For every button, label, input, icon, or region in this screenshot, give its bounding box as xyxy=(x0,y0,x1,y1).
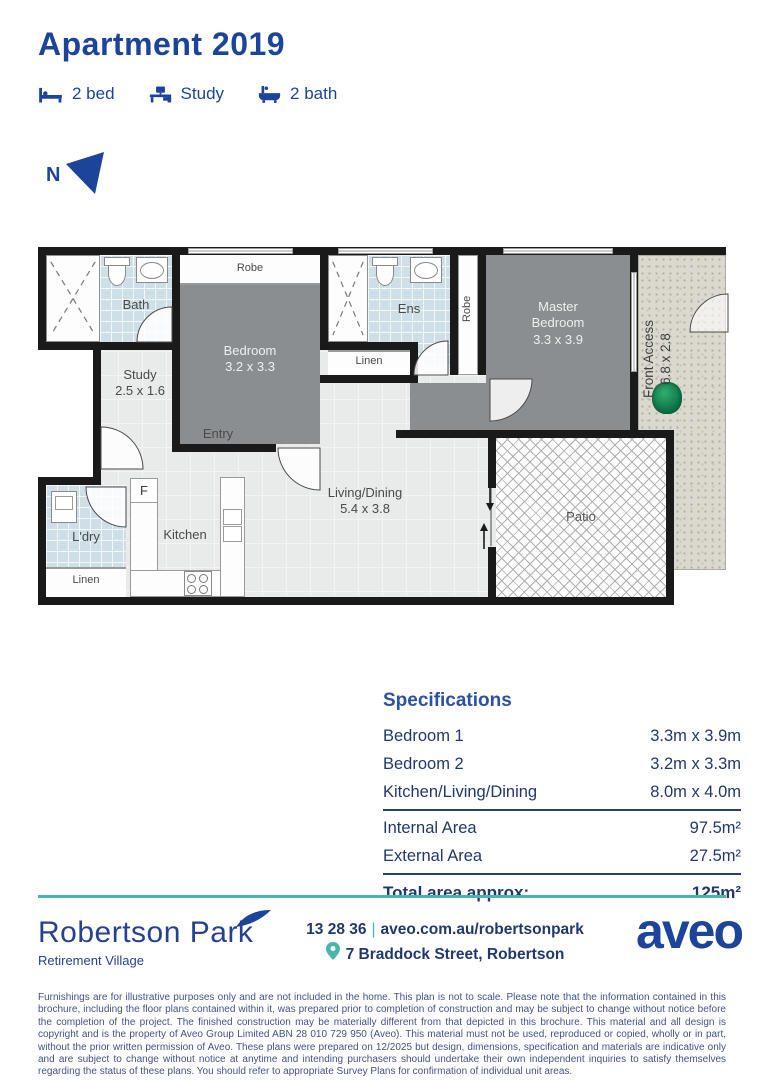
desk-icon xyxy=(149,86,172,103)
oven-icon xyxy=(223,509,242,525)
wall xyxy=(488,547,496,597)
wall xyxy=(396,430,674,438)
spec-total-label: Total area approx: xyxy=(383,883,529,903)
window xyxy=(503,248,613,254)
separator: | xyxy=(367,921,381,938)
front-access-dims: 6.8 x 2.8 xyxy=(658,279,675,439)
bedroom2-label: Bedroom 3.2 x 3.3 xyxy=(180,343,320,376)
wall xyxy=(172,247,180,452)
north-label: N xyxy=(46,164,60,187)
wall xyxy=(320,247,328,350)
spec-row: Internal Area 97.5m² xyxy=(383,814,741,842)
study-name: Study xyxy=(96,367,184,383)
village-name-text: Robertson Park xyxy=(38,916,253,949)
ensuite-label: Ens xyxy=(378,301,440,317)
toilet-icon xyxy=(104,257,130,286)
study-dims: 2.5 x 1.6 xyxy=(96,383,184,399)
spec-row: Bedroom 1 3.3m x 3.9m xyxy=(383,722,741,750)
spec-row: Kitchen/Living/Dining 8.0m x 4.0m xyxy=(383,778,741,806)
feature-baths: 2 bath xyxy=(258,84,337,104)
master-name: Master Bedroom xyxy=(513,299,603,332)
wall xyxy=(320,375,418,383)
specifications-panel: Specifications Bedroom 1 3.3m x 3.9m Bed… xyxy=(383,690,741,907)
window xyxy=(338,248,433,254)
laundry-label: L'dry xyxy=(50,529,122,545)
floor-plan: F xyxy=(38,247,730,613)
bath-icon xyxy=(258,85,281,103)
address-line: 7 Braddock Street, Robertson xyxy=(280,942,610,968)
bedroom2-name: Bedroom xyxy=(180,343,320,359)
divider xyxy=(38,895,726,898)
wall xyxy=(478,247,486,375)
robe-label: Robe xyxy=(180,262,320,276)
village-logo: Robertson Park Retirement Village xyxy=(38,916,253,968)
spec-label: Bedroom 2 xyxy=(383,755,464,774)
spec-row: External Area 27.5m² xyxy=(383,842,741,870)
wall xyxy=(488,438,496,488)
spec-value: 97.5m² xyxy=(690,819,741,838)
stove-icon xyxy=(184,571,212,596)
oven-icon xyxy=(223,526,242,542)
patio-label: Patio xyxy=(521,509,641,525)
feature-beds: 2 bed xyxy=(38,84,115,104)
wall xyxy=(172,444,276,452)
entry-label: Entry xyxy=(178,426,258,442)
living-dining-label: Living/Dining 5.4 x 3.8 xyxy=(285,485,445,518)
shower-bath xyxy=(46,255,100,342)
feature-baths-label: 2 bath xyxy=(290,84,337,104)
floorplan-brochure-page: Apartment 2019 2 bed Study 2 bath N xyxy=(0,0,764,1080)
wall xyxy=(666,430,674,605)
wall xyxy=(38,342,180,350)
wall xyxy=(38,597,674,605)
robe-master-label: Robe xyxy=(461,279,475,339)
wall xyxy=(320,342,418,350)
wall xyxy=(93,342,101,485)
fridge-label: F xyxy=(140,483,148,498)
master-bedroom-label: Master Bedroom 3.3 x 3.9 xyxy=(486,299,630,348)
wall xyxy=(410,342,418,383)
website-url[interactable]: aveo.com.au/robertsonpark xyxy=(381,921,584,938)
spec-row: Bedroom 2 3.2m x 3.3m xyxy=(383,750,741,778)
kitchen-label: Kitchen xyxy=(150,527,220,543)
spec-value: 3.3m x 3.9m xyxy=(650,727,741,746)
bedroom-hall xyxy=(410,383,486,430)
living-name: Living/Dining xyxy=(285,485,445,501)
spec-value: 3.2m x 3.3m xyxy=(650,755,741,774)
disclaimer-text: Furnishings are for illustrative purpose… xyxy=(38,992,726,1079)
feature-list: 2 bed Study 2 bath xyxy=(38,84,337,104)
linen-mid-label: Linen xyxy=(328,355,410,369)
spec-label: Bedroom 1 xyxy=(383,727,464,746)
contact-line: 13 28 36|aveo.com.au/robertsonpark xyxy=(280,918,610,942)
feature-study: Study xyxy=(149,84,224,104)
north-arrow-icon xyxy=(64,150,106,201)
village-name: Robertson Park xyxy=(38,916,253,950)
specifications-heading: Specifications xyxy=(383,690,741,712)
wall xyxy=(38,477,46,605)
spec-value: 27.5m² xyxy=(690,847,741,866)
front-access-label: Front Access 6.8 x 2.8 xyxy=(641,279,685,439)
spec-value: 8.0m x 4.0m xyxy=(650,783,741,802)
divider xyxy=(383,809,741,811)
feature-study-label: Study xyxy=(181,84,224,104)
study-label: Study 2.5 x 1.6 xyxy=(96,367,184,400)
master-dims: 3.3 x 3.9 xyxy=(486,332,630,348)
north-indicator: N xyxy=(46,150,106,201)
divider xyxy=(383,873,741,875)
phone-number: 13 28 36 xyxy=(306,921,366,938)
basin-icon xyxy=(410,257,442,283)
feature-beds-label: 2 bed xyxy=(72,84,115,104)
spec-label: External Area xyxy=(383,847,482,866)
fridge-space: F xyxy=(130,478,158,503)
address-text: 7 Braddock Street, Robertson xyxy=(346,943,565,967)
spec-label: Internal Area xyxy=(383,819,477,838)
outside-corner xyxy=(674,570,730,613)
spec-label: Kitchen/Living/Dining xyxy=(383,783,537,802)
front-access-name: Front Access xyxy=(641,279,658,439)
page-title: Apartment 2019 xyxy=(38,26,285,63)
leaf-icon xyxy=(235,902,273,936)
aveo-logo: aveo xyxy=(636,902,742,960)
living-dims: 5.4 x 3.8 xyxy=(285,501,445,517)
toilet-icon xyxy=(372,257,398,286)
outside-notch xyxy=(38,350,93,477)
window xyxy=(188,248,293,254)
washing-machine-icon xyxy=(51,491,77,523)
shower-ensuite xyxy=(328,255,368,342)
wall xyxy=(38,247,46,350)
bed-icon xyxy=(38,86,63,103)
contact-block: 13 28 36|aveo.com.au/robertsonpark 7 Bra… xyxy=(280,918,610,968)
window xyxy=(631,272,637,372)
bath-label: Bath xyxy=(104,297,168,313)
wall xyxy=(38,477,101,485)
location-pin-icon xyxy=(326,942,340,968)
spec-total-value: 125m² xyxy=(692,883,741,903)
bedroom2-dims: 3.2 x 3.3 xyxy=(180,359,320,375)
basin-icon xyxy=(136,257,168,283)
village-subtitle: Retirement Village xyxy=(38,953,253,968)
linen-bottom-label: Linen xyxy=(46,574,126,588)
wall xyxy=(450,247,458,375)
